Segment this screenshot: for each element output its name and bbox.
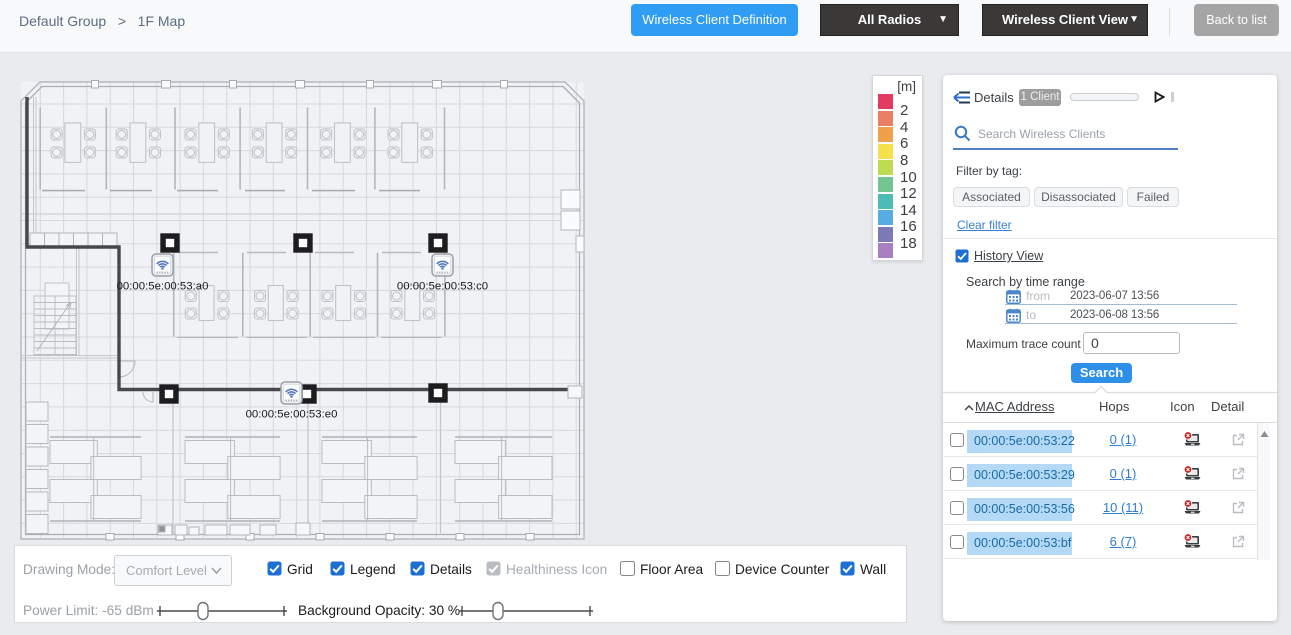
svg-text:00:00:5e:00:53:a0: 00:00:5e:00:53:a0 bbox=[117, 281, 209, 293]
svg-text:00:00:5e:00:53:c0: 00:00:5e:00:53:c0 bbox=[397, 281, 488, 293]
svg-text:00:00:5e:00:53:e0: 00:00:5e:00:53:e0 bbox=[246, 409, 338, 421]
